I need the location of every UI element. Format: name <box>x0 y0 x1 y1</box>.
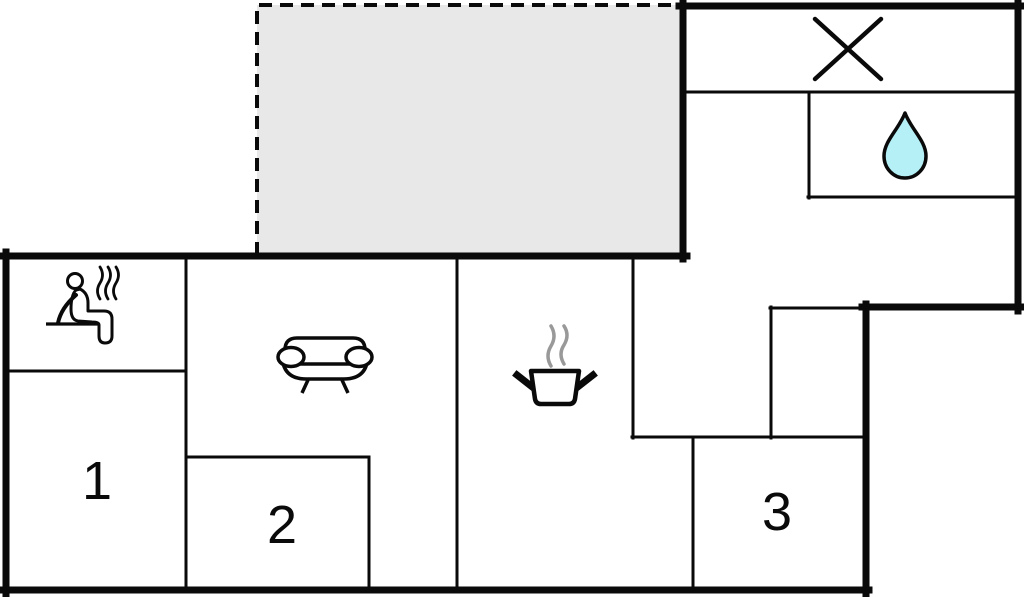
bedroom-3-label: 3 <box>762 485 792 539</box>
cross-icon <box>815 19 881 79</box>
terrace-fill <box>257 5 683 254</box>
sauna-icon <box>46 267 119 343</box>
sofa-legs <box>302 380 348 393</box>
sauna-steam-lines <box>98 267 119 299</box>
floor-plan-drawing <box>0 0 1024 597</box>
sofa-icon <box>278 338 372 393</box>
pot-steam-lines <box>548 326 567 366</box>
cross-icon-lines <box>815 19 881 79</box>
cooking-pot-icon <box>517 326 593 404</box>
terrace-area <box>257 5 683 255</box>
sauna-person-head <box>68 274 83 289</box>
floor-plan: 1 2 3 <box>0 0 1024 597</box>
water-drop-icon <box>884 113 926 178</box>
water-drop-shape <box>884 113 926 178</box>
bedroom-2-label: 2 <box>267 498 297 552</box>
sofa-armrest-left <box>278 348 304 367</box>
pot-body <box>531 371 579 404</box>
sofa-armrest-right <box>346 348 372 367</box>
bedroom-1-label: 1 <box>82 454 112 508</box>
